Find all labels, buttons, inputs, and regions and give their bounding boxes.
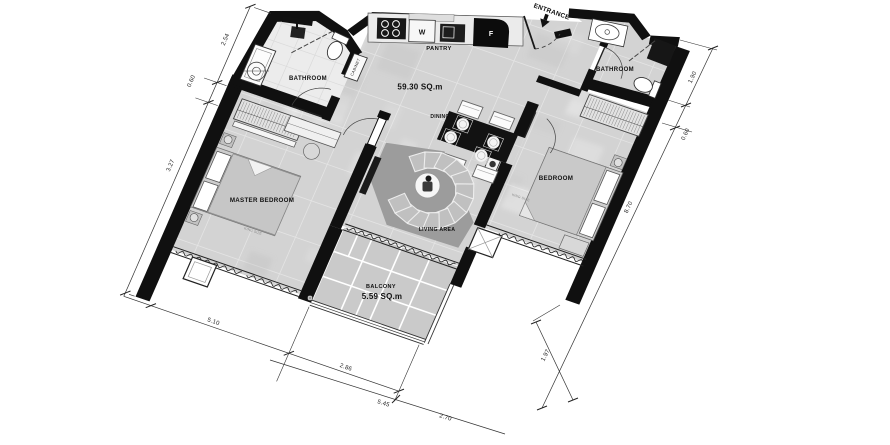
svg-text:BALCONY: BALCONY [366, 284, 396, 290]
svg-text:LIVING AREA: LIVING AREA [419, 227, 456, 233]
svg-text:BEDROOM: BEDROOM [539, 175, 573, 182]
svg-text:F: F [489, 31, 494, 38]
svg-text:DINING: DINING [430, 114, 449, 120]
svg-text:W: W [419, 30, 426, 37]
svg-text:PANTRY: PANTRY [426, 46, 452, 52]
svg-text:MASTER BEDROOM: MASTER BEDROOM [230, 197, 294, 204]
svg-text:5.59 SQ.m: 5.59 SQ.m [362, 292, 403, 301]
svg-text:BATHROOM: BATHROOM [289, 76, 327, 82]
svg-text:59.30 SQ.m: 59.30 SQ.m [397, 83, 442, 92]
svg-text:BATHROOM: BATHROOM [596, 67, 634, 73]
